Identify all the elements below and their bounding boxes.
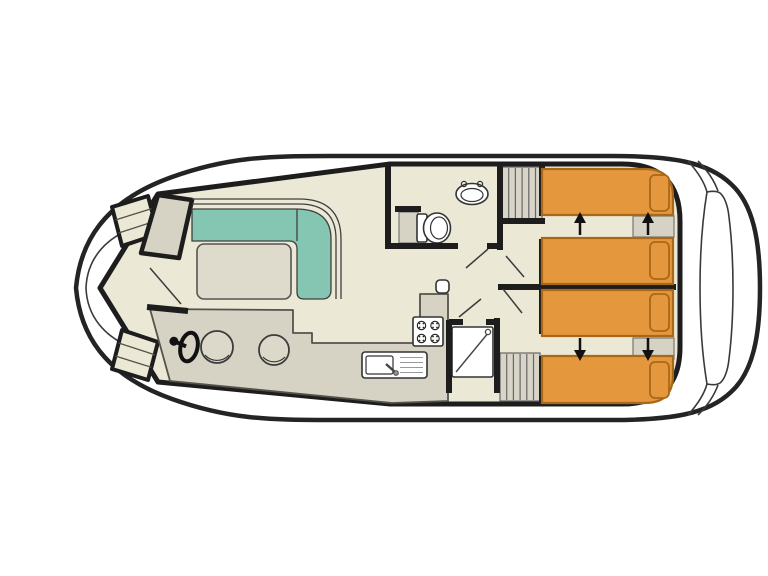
helm-stool-1 <box>201 331 233 363</box>
helm-stool-2 <box>259 335 289 365</box>
pillow <box>650 362 669 398</box>
shower-head <box>485 329 490 334</box>
shower-room <box>452 327 493 377</box>
saloon-table <box>197 244 291 299</box>
stairs-top <box>502 167 542 219</box>
boat-floor-plan <box>0 0 768 576</box>
counter-end-cap <box>436 280 449 293</box>
bathroom-cabinet <box>399 212 418 243</box>
pillow <box>650 175 669 211</box>
sink-faucet-knob <box>394 371 399 376</box>
stairs-bottom <box>500 353 540 401</box>
nightstand-strip <box>633 216 674 237</box>
floor-plan-svg <box>0 0 768 576</box>
pillow <box>650 294 669 331</box>
saloon <box>192 199 341 299</box>
pillow <box>650 242 669 279</box>
console-wall-cap <box>147 307 188 311</box>
